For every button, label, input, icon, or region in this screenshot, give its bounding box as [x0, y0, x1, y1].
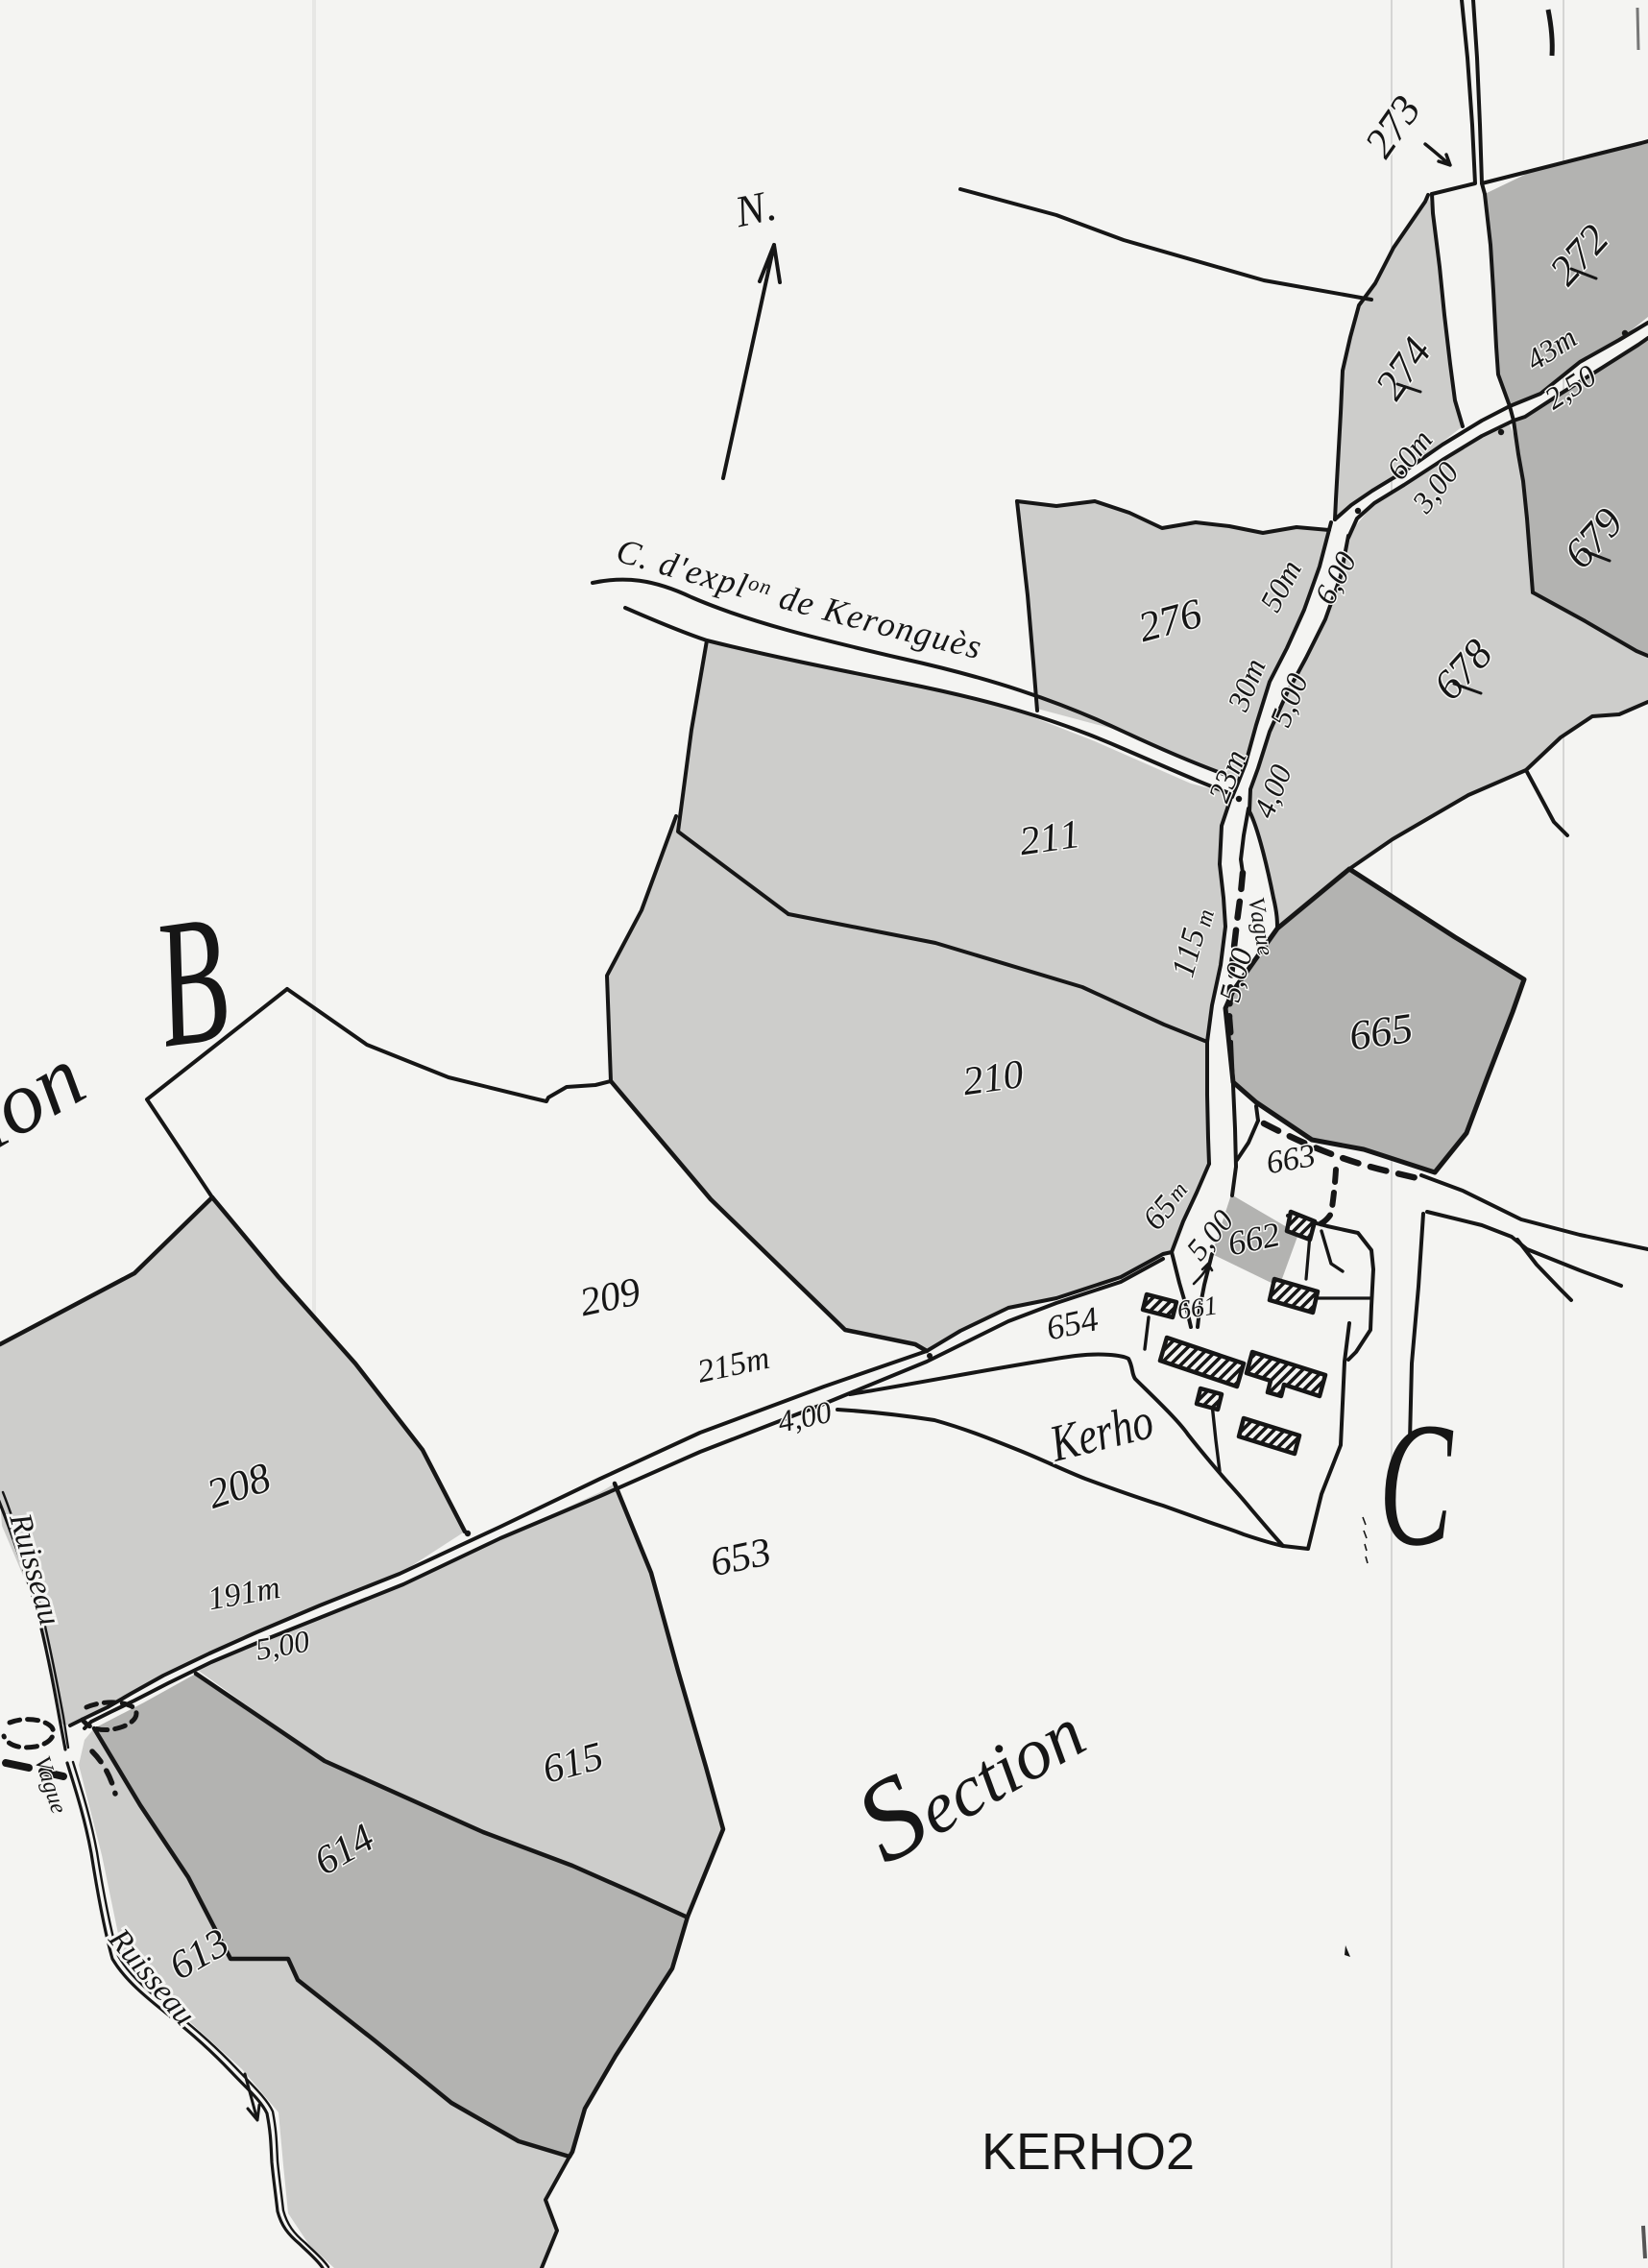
svg-text:C: C — [1379, 1387, 1454, 1583]
svg-text:210: 210 — [960, 1052, 1027, 1104]
svg-text:211: 211 — [1017, 812, 1083, 864]
svg-text:KERHO2: KERHO2 — [982, 2123, 1195, 2181]
svg-text:665: 665 — [1346, 1004, 1416, 1060]
svg-text:661: 661 — [1175, 1291, 1220, 1326]
